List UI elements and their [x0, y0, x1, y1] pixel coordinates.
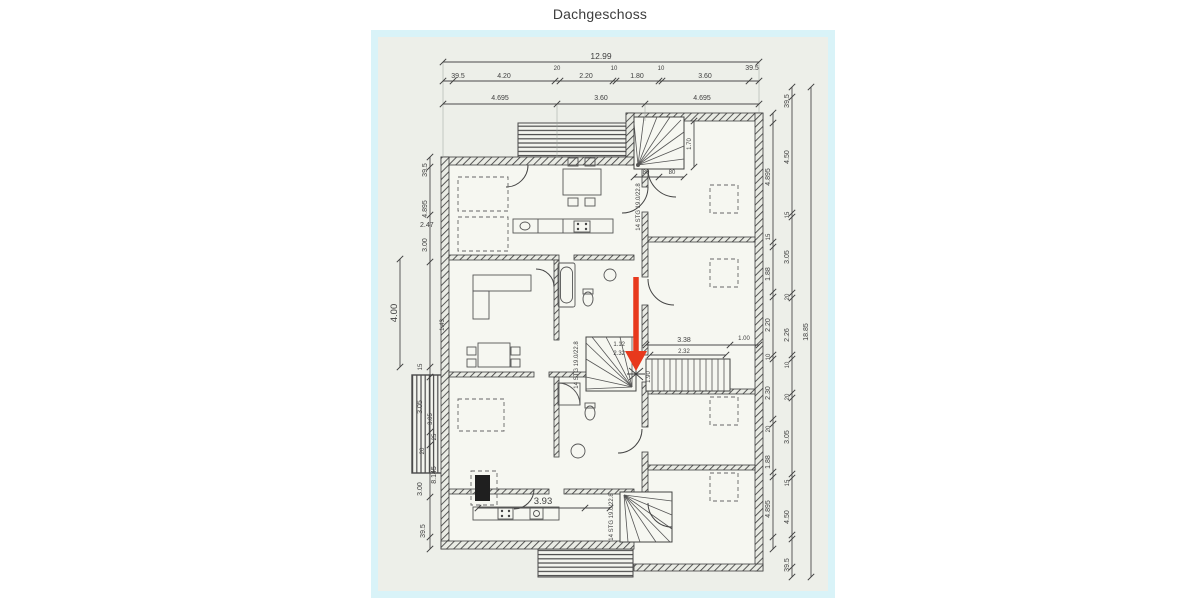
dim-chain-right: 4.895 15 1.88 2.20 10 2.30 20 1.88 4.895… [765, 84, 814, 580]
dim-label: 20 [554, 66, 561, 72]
dim-label: 80 [643, 170, 650, 176]
dim-label: 2.20 [579, 73, 593, 80]
dim-label: 4.895 [765, 500, 772, 518]
dim-label: 15 [418, 363, 424, 370]
dim-label: 15 [766, 233, 772, 240]
spiral-stair-bottom [620, 492, 672, 542]
dim-label: 4.20 [497, 73, 511, 80]
stair-label: 14 STG 19.0/22.8 [609, 493, 615, 541]
dim-label: 39.5 [745, 65, 759, 72]
dim-label: 3.05 [417, 400, 424, 414]
page-title: Dachgeschoss [0, 6, 1200, 22]
dim-label: 18.85 [803, 323, 810, 341]
floorplan-svg: 12.99 39.5 4.20 20 2.20 10 1.80 10 3.60 … [378, 37, 828, 586]
dim-label: 2.32 [678, 349, 690, 355]
dim-label: 39.5 [451, 73, 465, 80]
dim-label: 20 [766, 425, 772, 432]
dim-label: 3.38 [677, 337, 691, 344]
dim-label: 1.90 [646, 371, 652, 383]
dim-label: 1.80 [630, 73, 644, 80]
dim-label: 3.05 [784, 430, 791, 444]
dim-label: 15 [785, 211, 791, 218]
dim-label: 2.32 [613, 351, 625, 357]
dim-label: 1.70 [687, 138, 693, 150]
dim-label: 4.50 [784, 150, 791, 164]
balcony-left [412, 375, 442, 473]
dim-label: 39.5 [422, 163, 429, 177]
dim-label: 3.93 [534, 496, 553, 507]
dim-label: 1.88 [765, 267, 772, 281]
dim-label: 1.88 [765, 455, 772, 469]
dim-label: 2.47 [420, 222, 434, 229]
dim-label: 1.00 [738, 336, 750, 342]
dim-label: 4.50 [784, 510, 791, 524]
dim-label: 10 [785, 361, 791, 368]
dim-chain-top: 12.99 39.5 4.20 20 2.20 10 1.80 10 3.60 … [440, 51, 762, 107]
dim-label: 4.895 [422, 200, 429, 218]
stair-label: 14 STG 19.0/22.8 [636, 183, 642, 231]
dim-chain-left: 39.5 4.895 3.00 2.47 1.43 3.05 25 15 3.0… [389, 154, 446, 552]
dim-label: 39.5 [784, 558, 791, 572]
dim-label: 4.695 [491, 95, 509, 102]
dim-label: 3.60 [594, 95, 608, 102]
dim-label: 39.5 [784, 94, 791, 108]
dim-label: 2.20 [765, 318, 772, 332]
dim-label: 3.05 [428, 413, 434, 425]
dim-label: 2.30 [765, 386, 772, 400]
dim-label: 39.5 [420, 524, 427, 538]
dim-label: 4.695 [693, 95, 711, 102]
dim-label: 10 [611, 66, 618, 72]
dim-label: 2.26 [784, 328, 791, 342]
dim-label: 10 [766, 353, 772, 360]
dim-label: 4.895 [765, 168, 772, 186]
dim-label: 80 [669, 170, 676, 176]
floor-plan-scan: 12.99 39.5 4.20 20 2.20 10 1.80 10 3.60 … [371, 30, 835, 598]
balcony-top [518, 123, 626, 161]
dim-label: 20 [420, 447, 426, 454]
stair-label: 14 STG 19.0/22.8 [574, 341, 580, 389]
dim-label: 12.99 [590, 51, 612, 61]
straight-stair [646, 359, 730, 391]
dim-label: 3.00 [417, 482, 424, 496]
dim-label: 3.00 [422, 238, 429, 252]
dim-label: 1.43 [440, 319, 446, 331]
dim-label: 10 [658, 66, 665, 72]
dim-label: 8.145 [431, 466, 438, 484]
dim-label: 15 [785, 479, 791, 486]
dim-label: 4.00 [389, 304, 400, 323]
dim-label: 25 [432, 433, 438, 440]
dim-label: 20 [785, 293, 791, 300]
spiral-stair-top [634, 117, 684, 169]
dim-label: 1.12 [613, 342, 625, 348]
dim-label: 3.05 [784, 250, 791, 264]
dim-label: 20 [785, 393, 791, 400]
dim-label: 3.60 [698, 73, 712, 80]
spiral-stair-center [586, 337, 636, 391]
